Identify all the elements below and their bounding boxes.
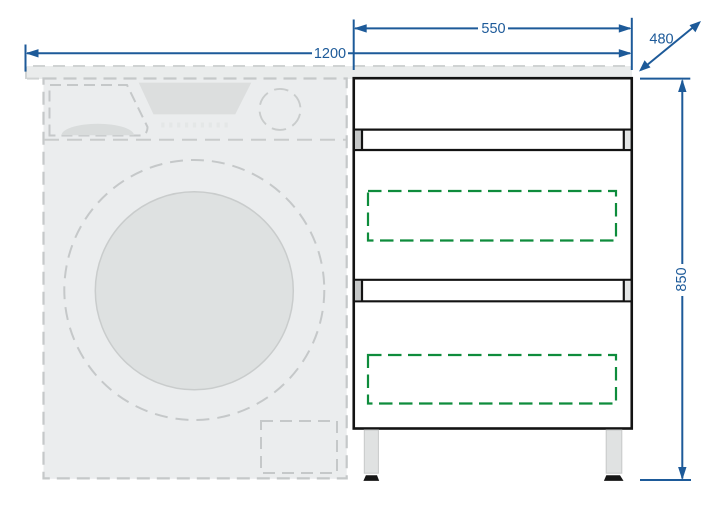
svg-text:550: 550	[481, 21, 505, 37]
svg-text:1200: 1200	[314, 46, 346, 62]
svg-text:850: 850	[674, 267, 690, 291]
svg-text:480: 480	[649, 32, 673, 48]
